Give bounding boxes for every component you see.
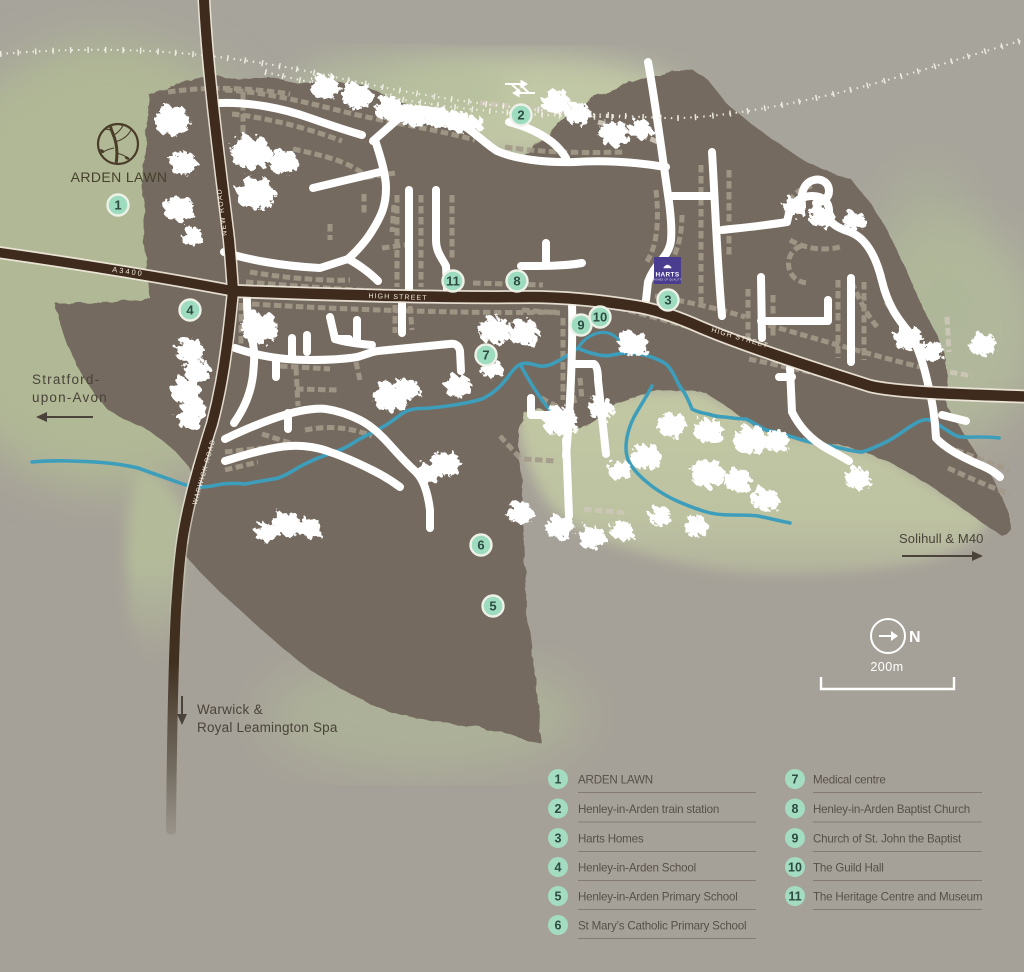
svg-text:11: 11 [788,890,801,904]
svg-text:N: N [909,629,921,646]
svg-text:Henley-in-Arden Primary School: Henley-in-Arden Primary School [578,891,738,904]
svg-text:Warwick &: Warwick & [197,702,263,717]
svg-text:1: 1 [555,773,562,787]
svg-text:Henley-in-Arden Baptist Church: Henley-in-Arden Baptist Church [813,803,970,816]
svg-text:2: 2 [555,802,562,816]
svg-text:St Mary’s Catholic Primary Sch: St Mary’s Catholic Primary School [578,920,746,933]
svg-text:The Guild Hall: The Guild Hall [813,862,884,875]
svg-text:8: 8 [792,802,799,816]
svg-text:5: 5 [555,890,562,904]
svg-text:5: 5 [489,599,496,614]
svg-text:4: 4 [186,303,194,318]
svg-text:9: 9 [577,318,584,333]
svg-text:200m: 200m [870,660,903,674]
svg-text:Harts Homes: Harts Homes [578,833,644,846]
svg-text:Henley-in-Arden train station: Henley-in-Arden train station [578,803,719,816]
svg-text:10: 10 [788,861,802,875]
svg-text:6: 6 [555,919,562,933]
svg-text:9: 9 [792,832,799,846]
svg-text:Church of St. John the Baptist: Church of St. John the Baptist [813,833,962,846]
svg-text:The Heritage Centre and Museum: The Heritage Centre and Museum [813,891,982,904]
svg-text:4: 4 [555,861,562,875]
svg-text:7: 7 [482,348,489,363]
svg-text:3: 3 [555,832,562,846]
svg-text:Medical centre: Medical centre [813,774,886,787]
svg-text:Solihull & M40: Solihull & M40 [899,531,984,546]
svg-text:HARTS: HARTS [655,272,679,279]
svg-text:6: 6 [477,538,484,553]
svg-text:1: 1 [114,198,121,213]
svg-text:3: 3 [664,293,671,308]
svg-text:Stratford-: Stratford- [32,372,100,387]
svg-text:2: 2 [517,108,524,123]
svg-text:10: 10 [593,310,607,325]
svg-text:HOMES OF QUALITY: HOMES OF QUALITY [653,279,682,282]
svg-text:Henley-in-Arden School: Henley-in-Arden School [578,862,696,875]
svg-text:7: 7 [792,773,799,787]
svg-text:ARDEN LAWN: ARDEN LAWN [578,774,653,787]
svg-text:11: 11 [446,274,460,289]
svg-text:8: 8 [513,274,520,289]
svg-text:Royal Leamington Spa: Royal Leamington Spa [197,720,338,735]
svg-text:upon-Avon: upon-Avon [32,390,108,405]
svg-text:ARDEN LAWN: ARDEN LAWN [71,169,168,185]
